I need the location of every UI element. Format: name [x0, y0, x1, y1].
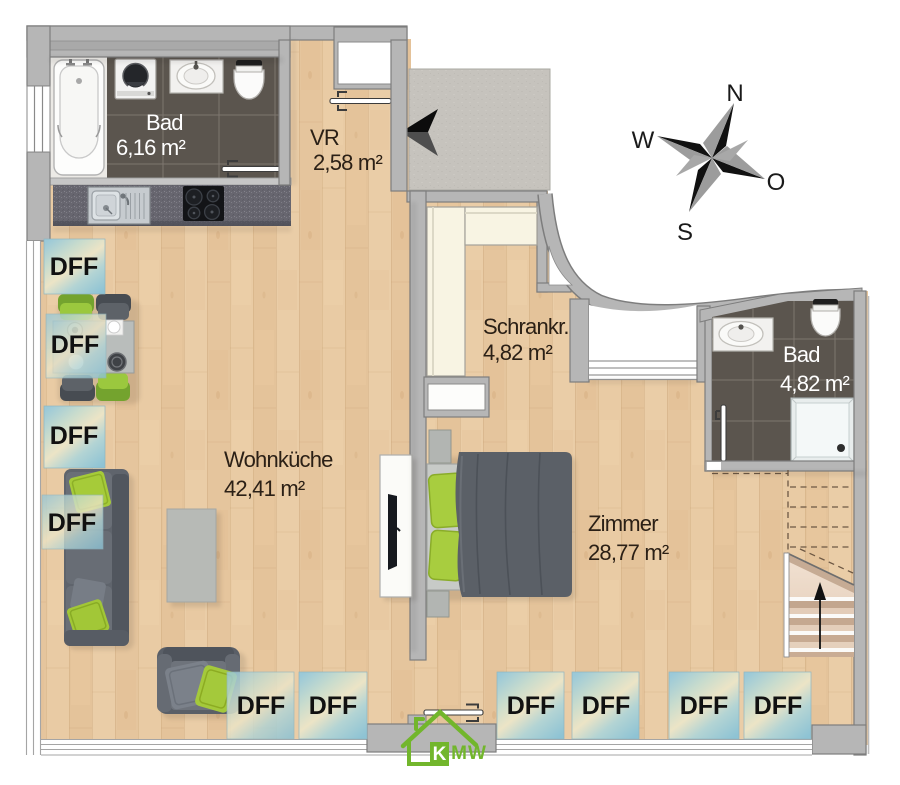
svg-text:DFF: DFF: [237, 692, 286, 720]
svg-text:DFF: DFF: [50, 253, 99, 281]
svg-text:DFF: DFF: [754, 692, 803, 720]
svg-text:Wohnküche: Wohnküche: [224, 447, 333, 472]
svg-text:6,16 m²: 6,16 m²: [116, 135, 185, 160]
svg-text:W: W: [632, 127, 655, 154]
svg-text:4,82 m²: 4,82 m²: [780, 371, 849, 396]
svg-text:DFF: DFF: [51, 331, 100, 359]
svg-text:DFF: DFF: [507, 692, 556, 720]
svg-text:Schrankr.: Schrankr.: [483, 314, 569, 339]
svg-text:DFF: DFF: [582, 692, 631, 720]
svg-text:K: K: [433, 744, 447, 765]
svg-text:Bad: Bad: [783, 342, 820, 367]
svg-text:S: S: [677, 219, 693, 246]
svg-text:42,41 m²: 42,41 m²: [224, 476, 305, 501]
svg-text:DFF: DFF: [48, 509, 97, 537]
svg-text:DFF: DFF: [50, 422, 99, 450]
svg-text:W: W: [468, 743, 486, 764]
svg-text:Bad: Bad: [146, 110, 183, 135]
svg-text:M: M: [451, 743, 467, 764]
svg-text:O: O: [767, 169, 786, 196]
svg-text:VR: VR: [310, 125, 339, 150]
svg-text:N: N: [726, 80, 743, 107]
svg-text:DFF: DFF: [309, 692, 358, 720]
svg-text:2,58 m²: 2,58 m²: [313, 150, 382, 175]
svg-text:Zimmer: Zimmer: [588, 511, 658, 536]
svg-text:28,77 m²: 28,77 m²: [588, 540, 669, 565]
svg-text:4,82 m²: 4,82 m²: [483, 340, 552, 365]
svg-text:DFF: DFF: [680, 692, 729, 720]
